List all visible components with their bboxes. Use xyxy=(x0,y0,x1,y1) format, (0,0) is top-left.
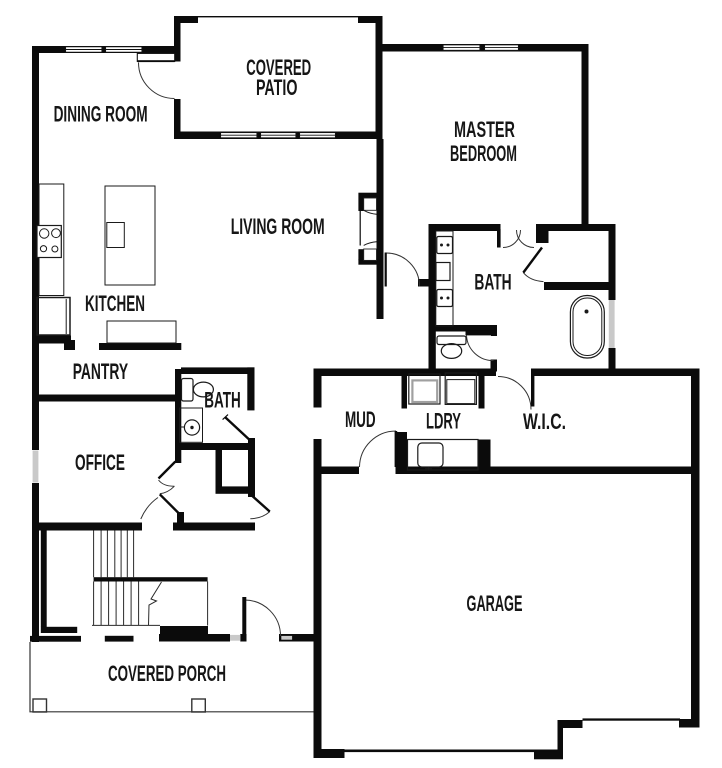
svg-text:MUD: MUD xyxy=(345,406,376,431)
svg-text:DINING ROOM: DINING ROOM xyxy=(54,101,148,126)
svg-text:KITCHEN: KITCHEN xyxy=(85,290,145,315)
svg-text:BATH: BATH xyxy=(474,269,511,294)
svg-text:BATH: BATH xyxy=(204,387,240,412)
svg-text:BEDROOM: BEDROOM xyxy=(450,140,517,166)
svg-text:LDRY: LDRY xyxy=(426,408,461,434)
svg-text:W.I.C.: W.I.C. xyxy=(523,409,566,434)
svg-text:PANTRY: PANTRY xyxy=(73,359,129,384)
svg-text:COVERED PORCH: COVERED PORCH xyxy=(108,660,226,686)
svg-text:PATIO: PATIO xyxy=(256,75,297,100)
svg-text:OFFICE: OFFICE xyxy=(75,449,125,474)
svg-text:GARAGE: GARAGE xyxy=(467,590,523,616)
svg-text:LIVING ROOM: LIVING ROOM xyxy=(231,214,325,239)
